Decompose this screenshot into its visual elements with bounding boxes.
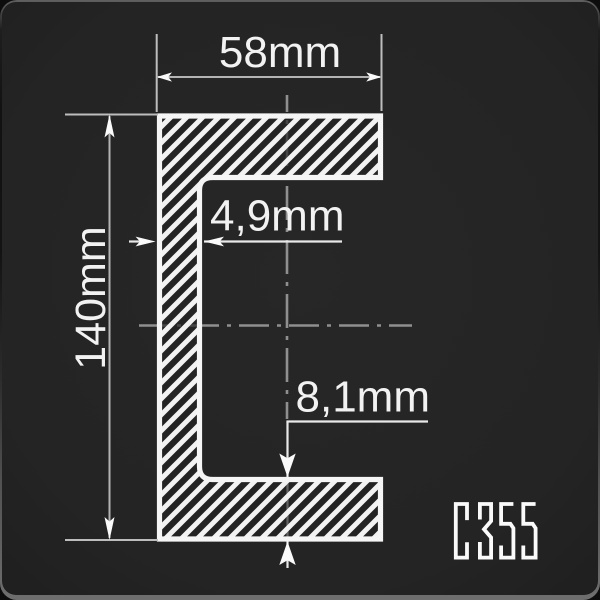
svg-text:8,1mm: 8,1mm xyxy=(296,373,430,422)
svg-text:4,9mm: 4,9mm xyxy=(210,192,344,241)
svg-text:140mm: 140mm xyxy=(67,226,115,369)
svg-text:58mm: 58mm xyxy=(219,28,341,77)
